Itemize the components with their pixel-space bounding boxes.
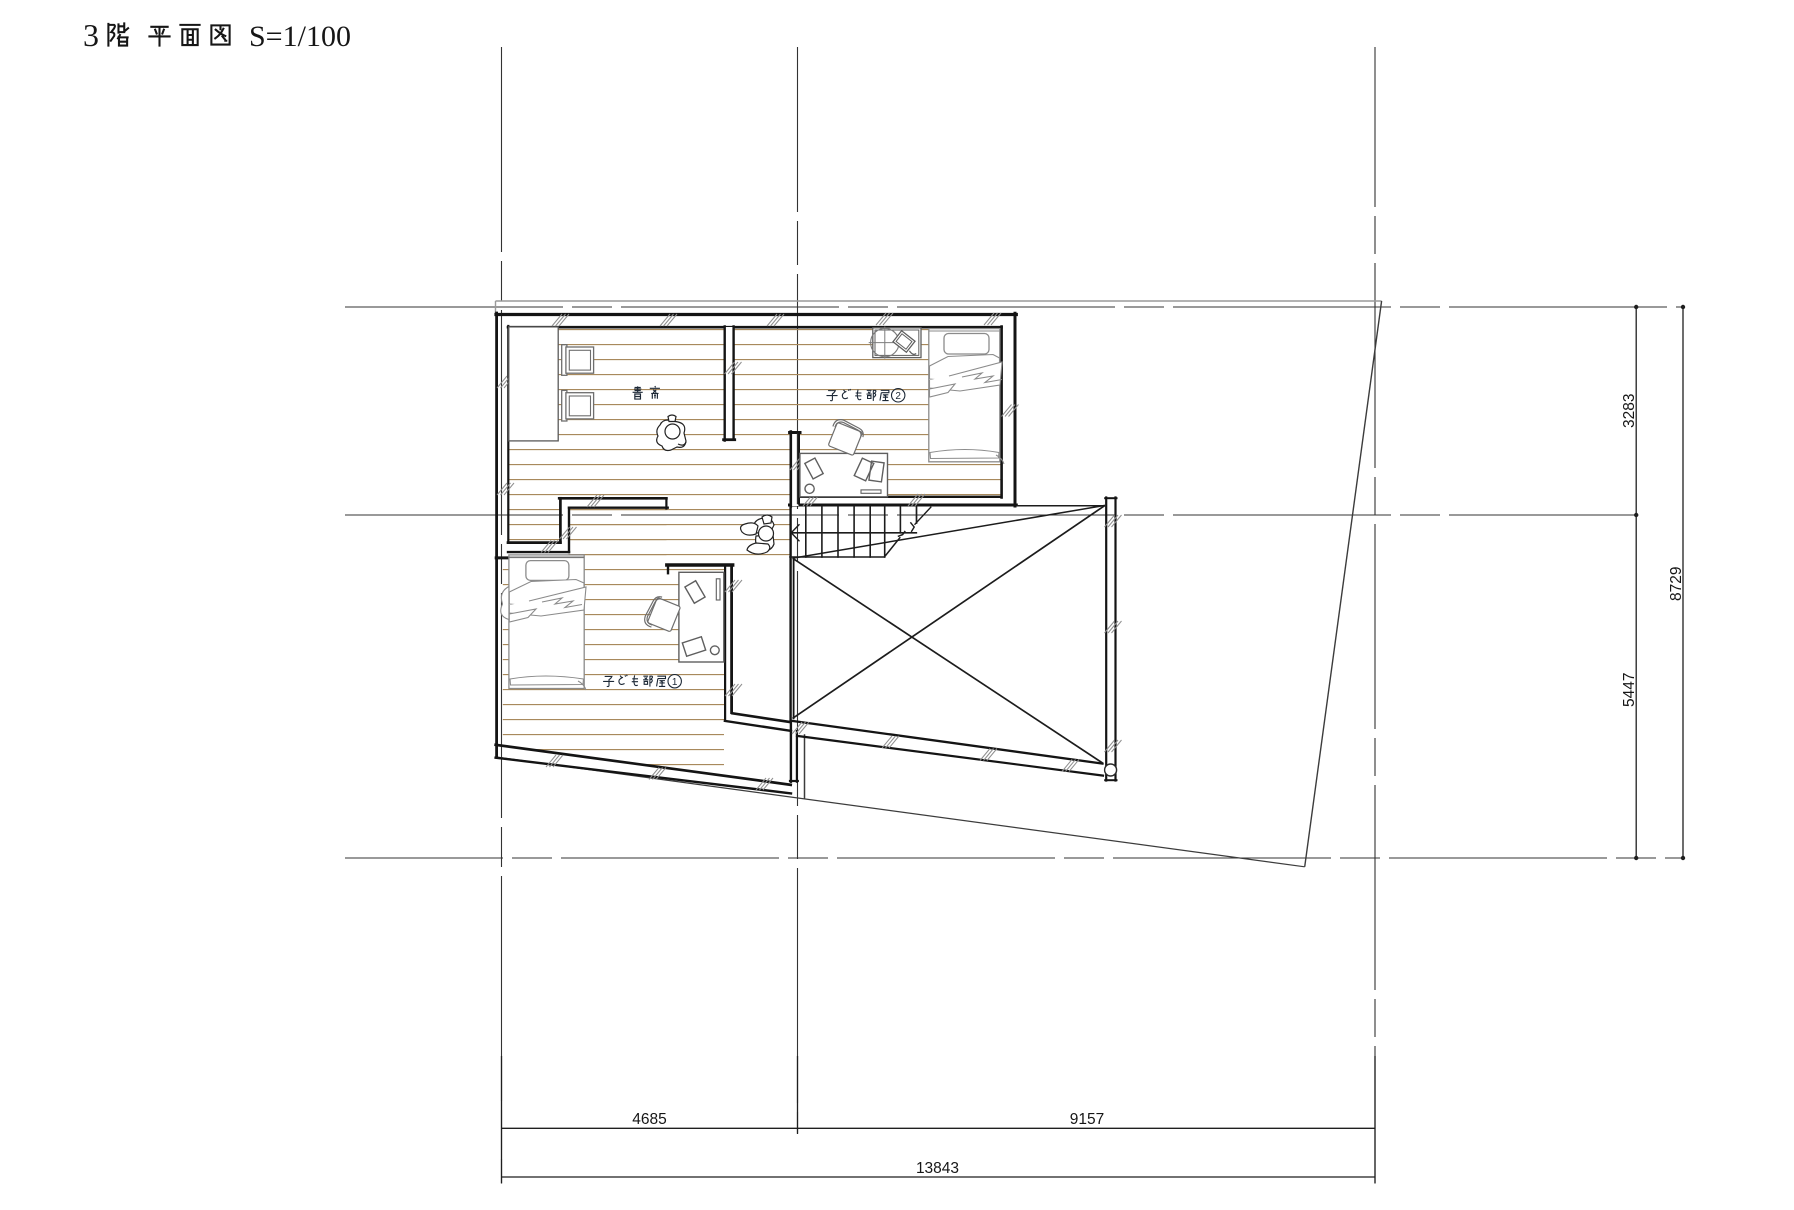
svg-text:8729: 8729	[1668, 567, 1685, 601]
svg-text:3: 3	[83, 17, 99, 53]
svg-text:2: 2	[895, 391, 901, 402]
svg-text:5447: 5447	[1621, 673, 1638, 707]
svg-text:S=1/100: S=1/100	[249, 20, 351, 53]
svg-text:3283: 3283	[1621, 394, 1638, 428]
svg-text:13843: 13843	[916, 1160, 959, 1177]
svg-text:4685: 4685	[632, 1111, 666, 1128]
svg-text:1: 1	[672, 677, 678, 688]
svg-text:9157: 9157	[1070, 1111, 1104, 1128]
